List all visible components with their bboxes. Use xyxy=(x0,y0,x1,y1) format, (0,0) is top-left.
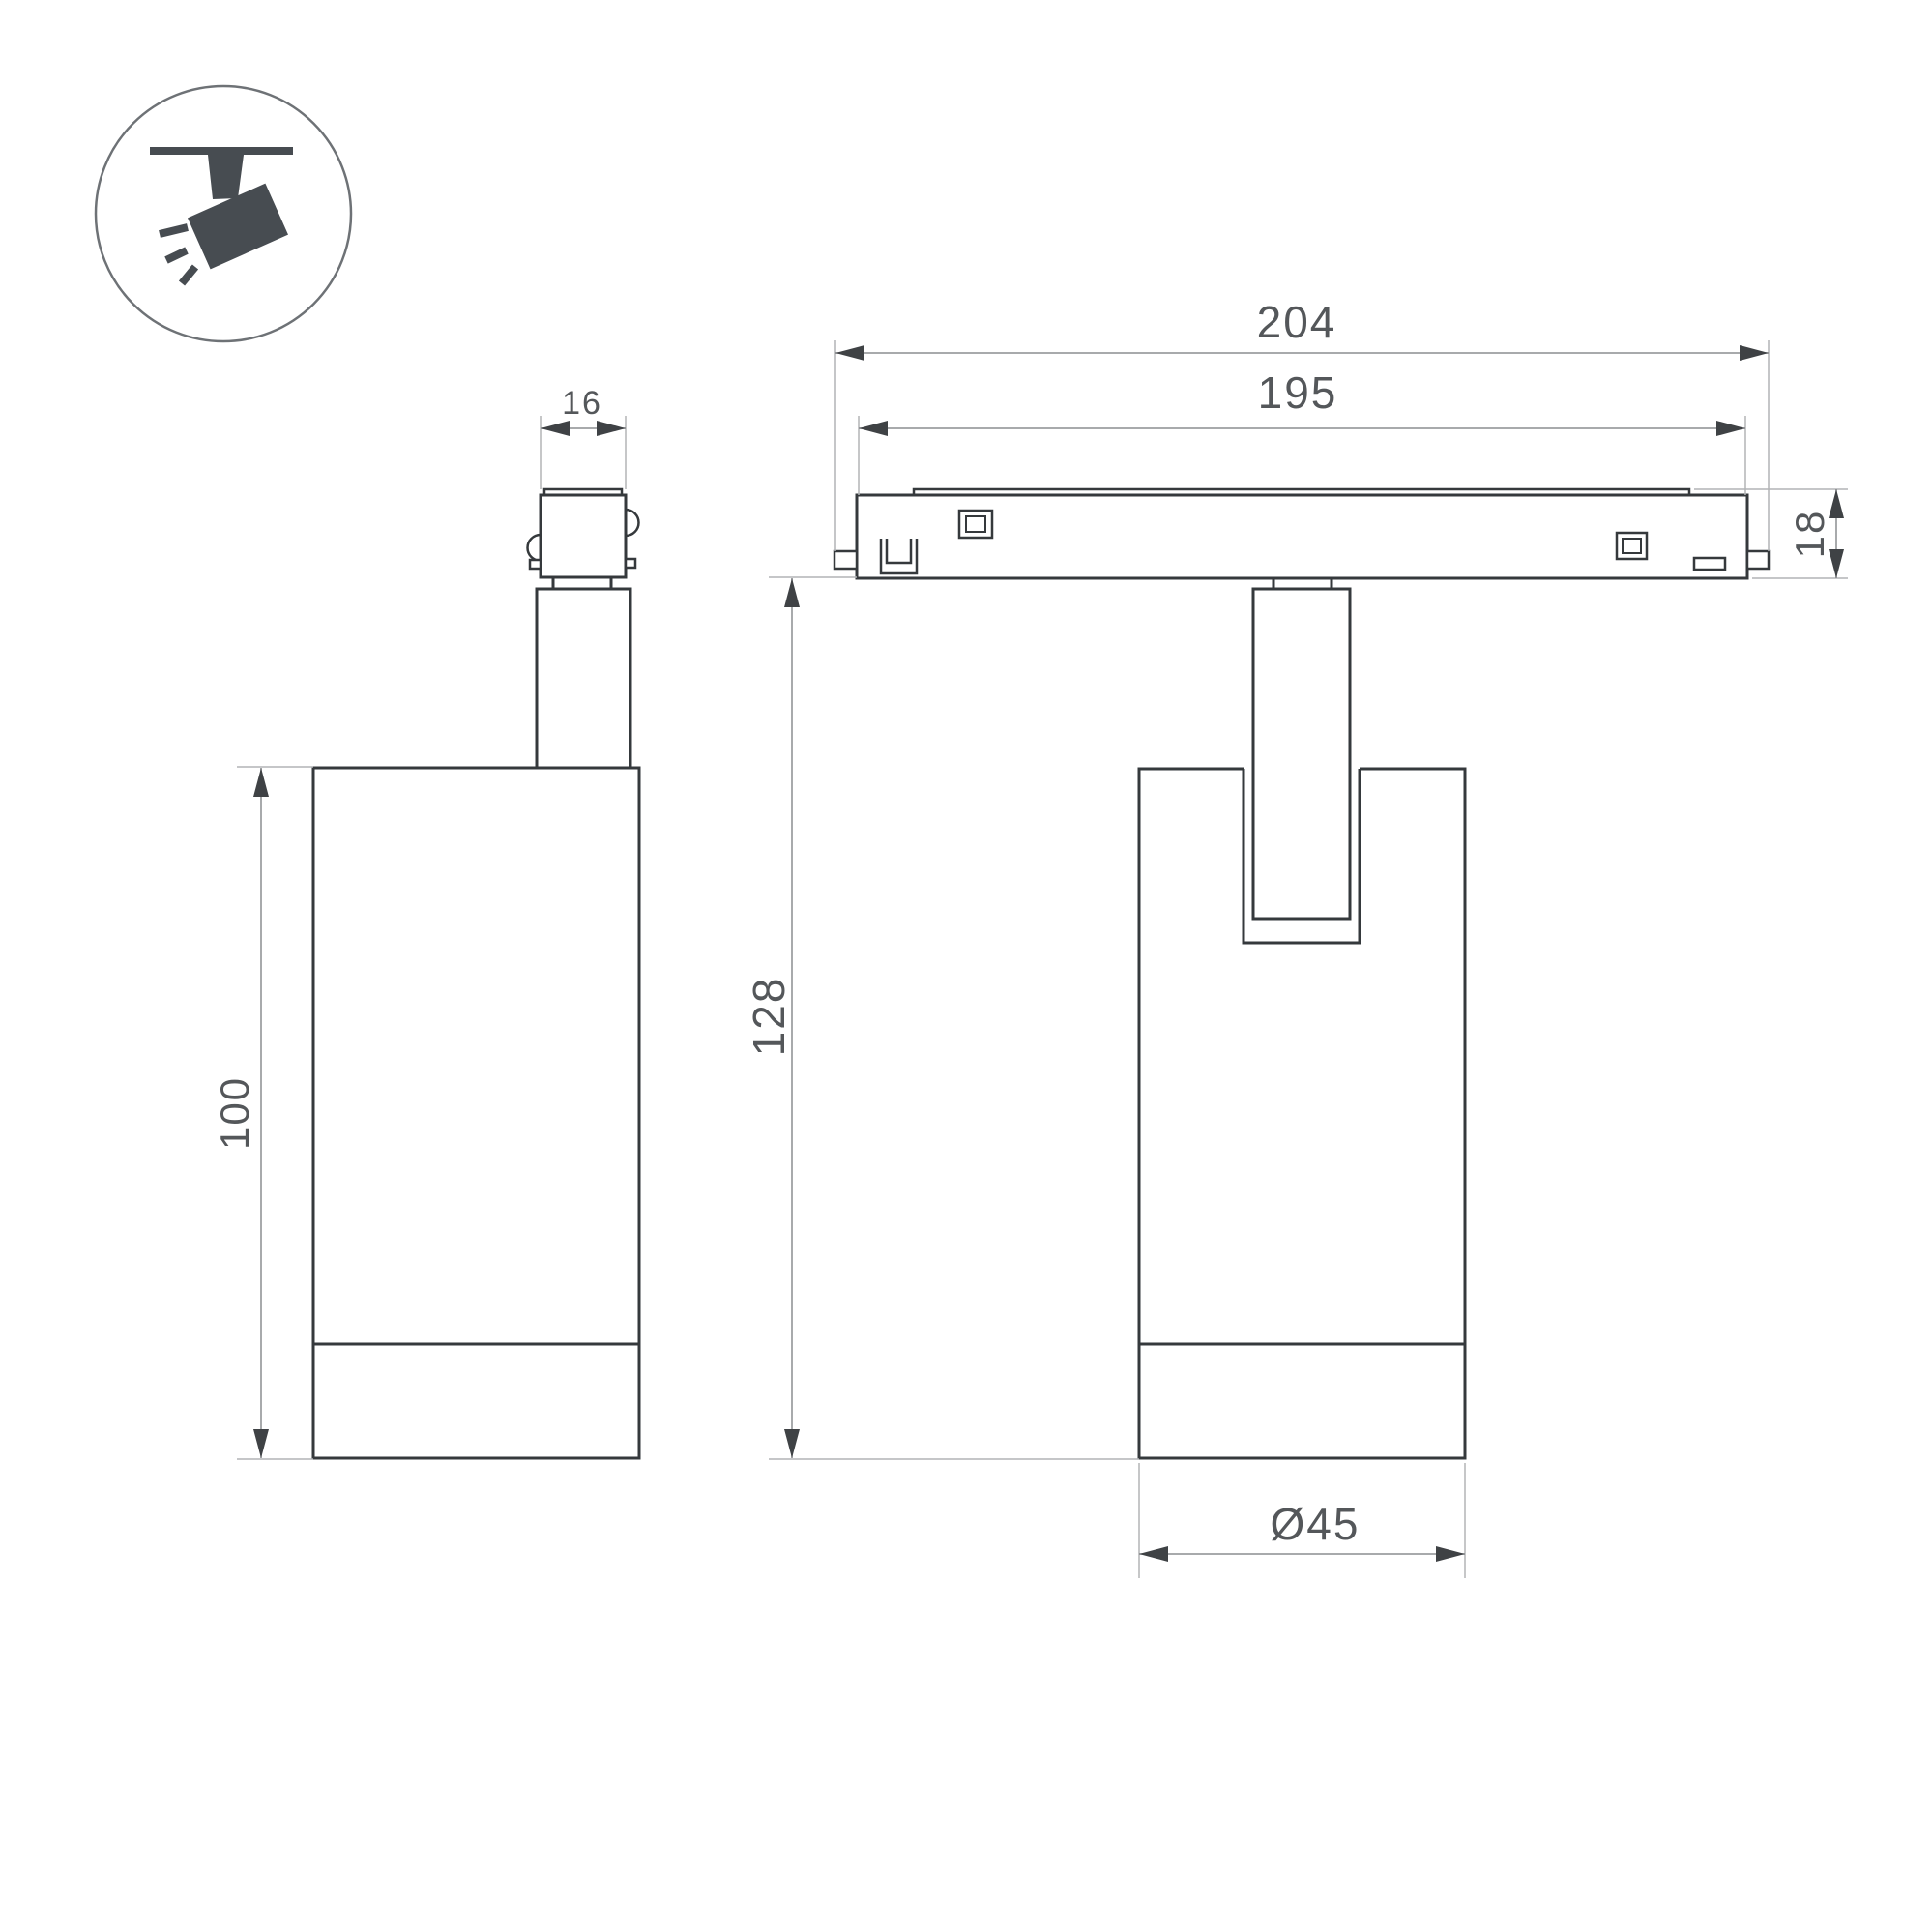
track-end-tab-left xyxy=(834,551,857,569)
track-detail-square-left-inner xyxy=(966,516,985,532)
side-track-adapter xyxy=(541,495,626,577)
front-neck xyxy=(1273,578,1332,589)
side-body xyxy=(313,768,639,1458)
dim-label-track-height: 18 xyxy=(1790,510,1830,559)
dim-label-overall-height: 128 xyxy=(746,977,791,1057)
side-clip-tab-left xyxy=(530,560,541,569)
side-clip-arc-left xyxy=(528,535,542,561)
icon-track-bar xyxy=(150,147,293,155)
dim-label-diameter: Ø45 xyxy=(1271,1502,1361,1546)
side-neck xyxy=(553,577,611,589)
dimension-128 xyxy=(769,577,1139,1459)
front-view xyxy=(834,489,1769,1458)
dim-label-overall-length: 204 xyxy=(1257,300,1337,344)
dimension-195 xyxy=(859,416,1745,495)
ceiling-track-spotlight-icon xyxy=(96,86,351,341)
technical-drawing-page: 16 204 195 18 128 100 Ø45 xyxy=(0,0,1932,1932)
track-detail-square-right-inner xyxy=(1623,539,1641,553)
side-clip-tab-right xyxy=(626,559,635,568)
icon-mount-stem xyxy=(208,155,244,199)
dim-label-body-height: 100 xyxy=(215,1076,255,1150)
drawing-canvas xyxy=(0,0,1932,1932)
dimension-16 xyxy=(541,416,626,489)
side-view xyxy=(313,489,639,1458)
dim-label-adapter-width: 16 xyxy=(562,387,602,420)
dim-label-body-length: 195 xyxy=(1258,370,1338,415)
track-end-tab-right xyxy=(1747,551,1769,569)
side-clip-arc-right xyxy=(626,510,639,536)
front-stem xyxy=(1253,589,1350,919)
side-stem xyxy=(537,589,630,768)
track-detail-slot-right xyxy=(1694,558,1725,570)
